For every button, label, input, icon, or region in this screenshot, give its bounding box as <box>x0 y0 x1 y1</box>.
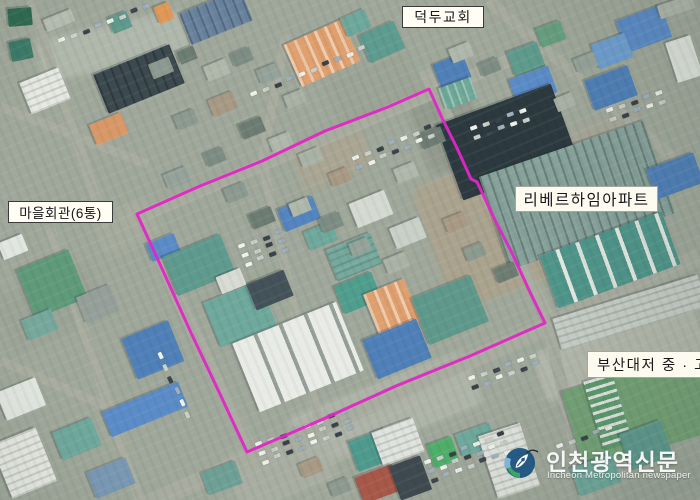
car <box>241 252 249 258</box>
car <box>431 477 439 483</box>
car <box>130 7 138 13</box>
building <box>665 35 700 83</box>
small-house <box>448 41 474 63</box>
car <box>451 458 459 464</box>
car <box>442 471 450 477</box>
car <box>388 139 396 145</box>
building <box>0 377 46 421</box>
car <box>520 366 528 372</box>
car <box>238 243 246 249</box>
car <box>427 468 435 474</box>
car <box>404 144 412 150</box>
car <box>262 86 270 92</box>
car <box>504 361 512 367</box>
newspaper-watermark: 인천광역신문 Incheon Metropolitan newspaper <box>503 443 700 491</box>
car <box>480 371 488 377</box>
car <box>440 464 448 470</box>
car <box>655 90 663 96</box>
car <box>254 248 262 254</box>
building <box>584 65 638 111</box>
small-house <box>393 161 419 183</box>
newspaper-logo-icon <box>503 445 539 481</box>
car <box>256 255 264 261</box>
label-school: 부산대저 중 · 고 <box>587 351 700 378</box>
building <box>349 190 394 228</box>
label-church: 덕두교회 <box>402 6 484 28</box>
car <box>368 159 376 165</box>
car <box>476 450 484 456</box>
car <box>376 146 384 152</box>
small-house <box>383 251 411 275</box>
small-house <box>173 108 199 130</box>
building <box>657 0 696 19</box>
car <box>142 3 150 9</box>
small-house <box>203 58 231 82</box>
building <box>7 7 32 27</box>
car <box>464 454 472 460</box>
building <box>122 320 185 380</box>
building <box>89 112 129 145</box>
car <box>517 357 525 363</box>
car <box>508 370 516 376</box>
building <box>43 9 76 32</box>
car <box>250 90 258 96</box>
car <box>455 467 463 473</box>
car <box>424 459 432 465</box>
building <box>0 427 57 499</box>
small-house <box>318 211 344 233</box>
car <box>646 103 654 109</box>
car <box>642 93 650 99</box>
small-house <box>163 166 191 190</box>
building <box>8 38 34 62</box>
small-house <box>203 147 227 167</box>
car <box>391 148 399 154</box>
watermark-english-text: Incheon Metropolitan newspaper <box>547 470 691 481</box>
car <box>495 374 503 380</box>
label-village-hall: 마을회관(6통) <box>8 201 113 223</box>
car <box>263 235 271 241</box>
satellite-map: 덕두교회 마을회관(6통) 리베르하임아파트 부산대저 중 · 고 인천광역신문… <box>0 0 700 500</box>
car <box>400 135 408 141</box>
car <box>269 251 277 257</box>
car <box>245 261 253 267</box>
car <box>265 242 273 248</box>
building <box>0 234 28 260</box>
building <box>179 0 253 45</box>
car <box>184 411 191 419</box>
car <box>286 75 294 81</box>
label-apartment: 리베르하임아파트 <box>515 186 658 212</box>
small-house <box>573 51 599 73</box>
car <box>658 99 666 105</box>
car <box>493 367 501 373</box>
car <box>467 463 475 469</box>
building <box>389 217 427 249</box>
small-house <box>230 47 254 67</box>
car <box>631 100 639 106</box>
car <box>379 152 387 158</box>
aerial-imagery <box>0 0 700 500</box>
small-house <box>553 92 577 112</box>
building <box>52 417 102 461</box>
car <box>484 380 492 386</box>
car <box>250 239 258 245</box>
small-house <box>208 91 239 117</box>
building <box>535 20 566 48</box>
small-house <box>283 89 307 109</box>
